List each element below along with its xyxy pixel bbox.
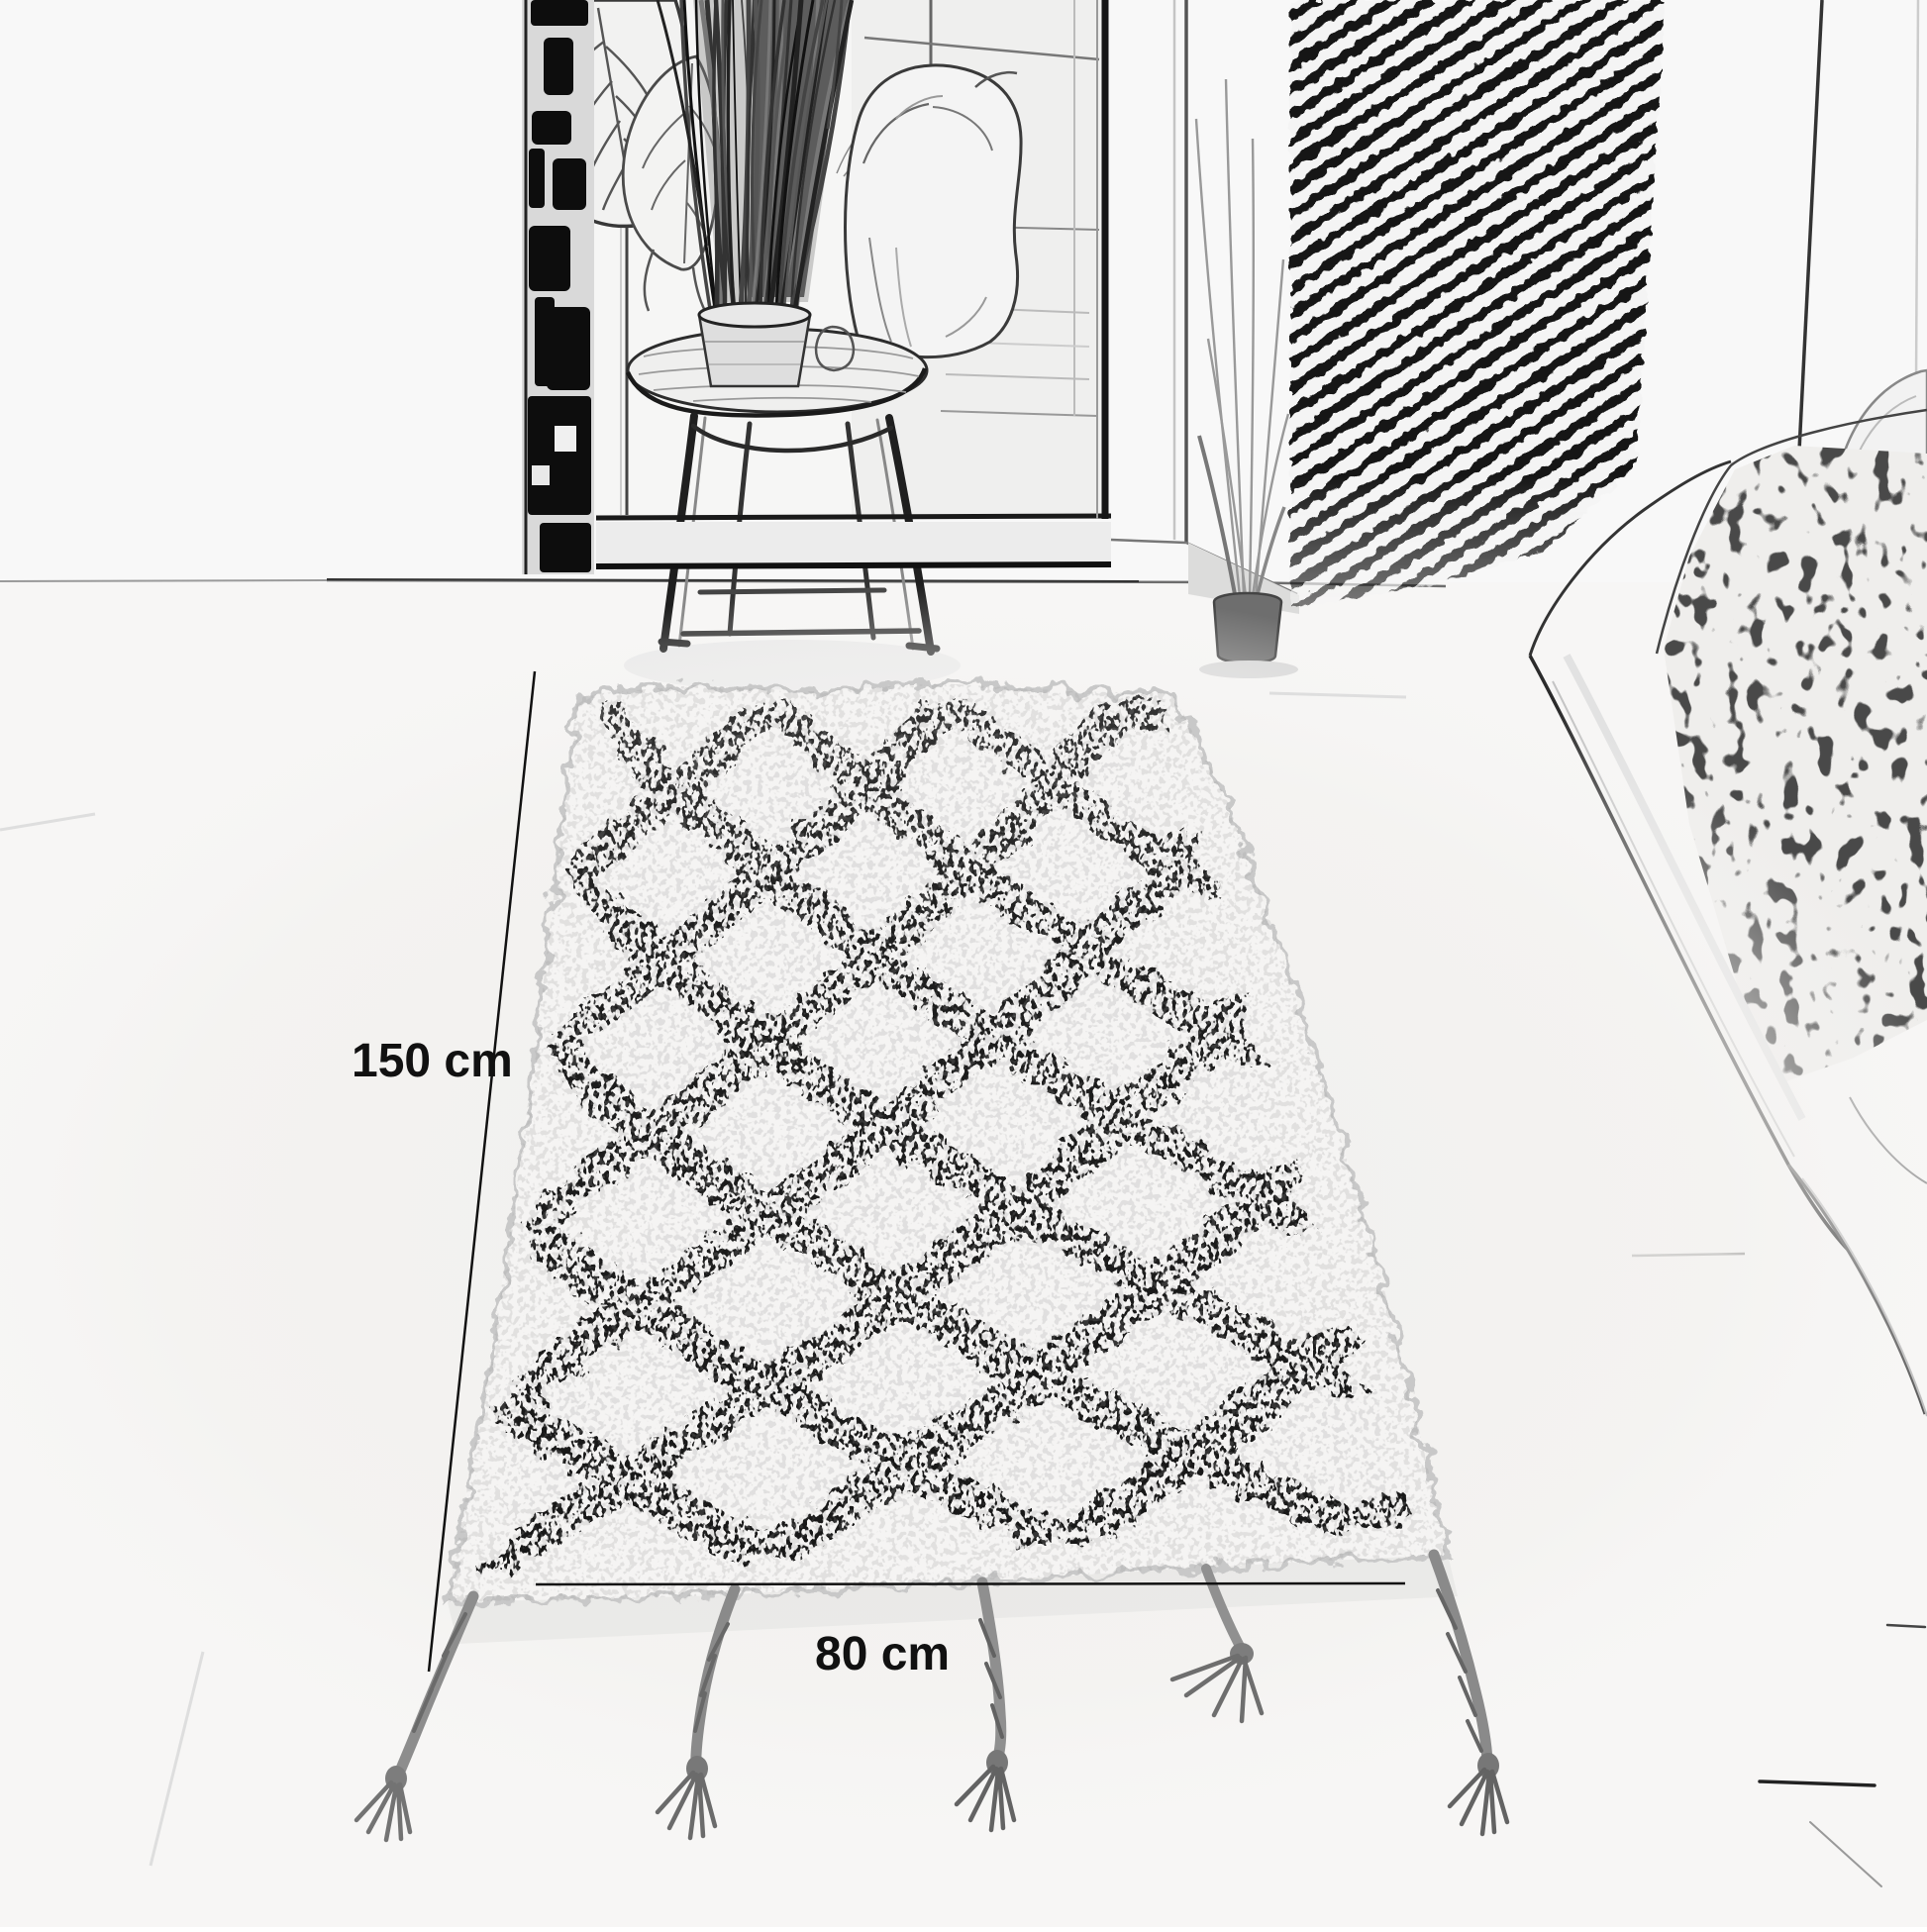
- svg-text:150 cm: 150 cm: [352, 1035, 513, 1087]
- svg-text:80 cm: 80 cm: [815, 1628, 950, 1680]
